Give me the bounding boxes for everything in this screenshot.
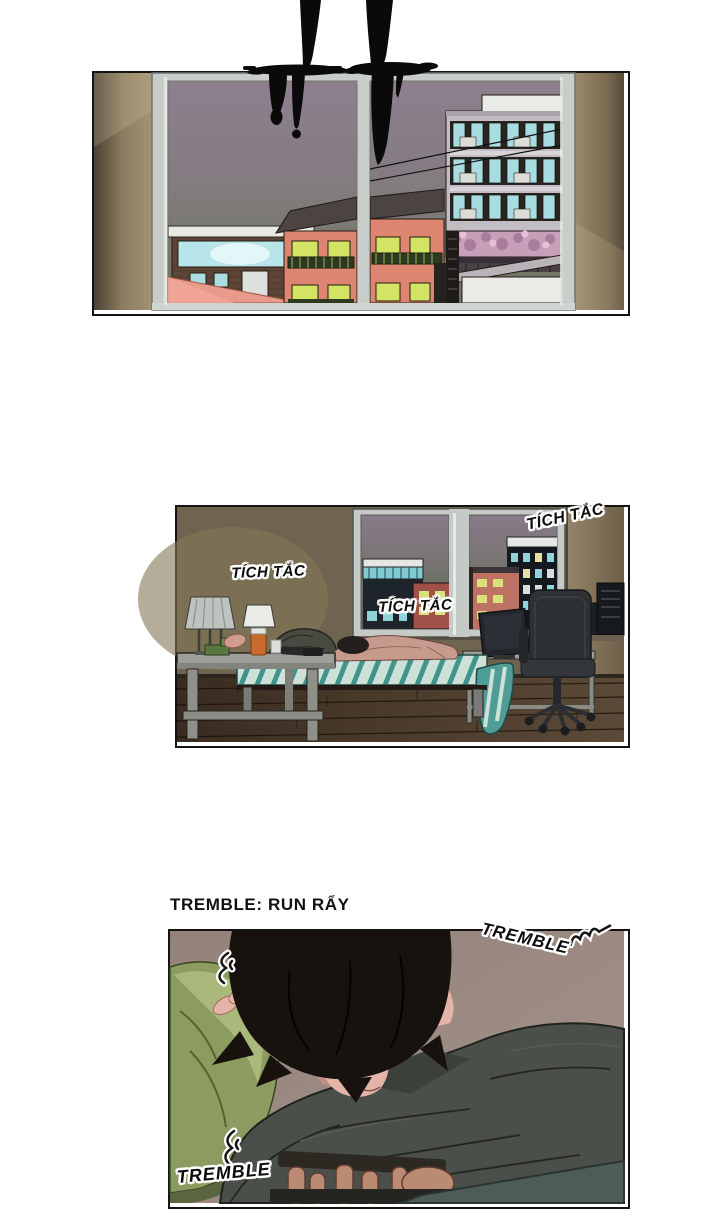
sfx-tick-tock-left: TÍCH TẮC	[231, 562, 306, 582]
panel-trembling-closeup: TREMBLE TREMBLE	[168, 929, 630, 1209]
translation-note: TREMBLE: RUN RẨY	[170, 895, 350, 915]
ladder	[446, 231, 459, 303]
sfx-tick-tock-center: TÍCH TẮC	[378, 596, 453, 616]
dark-hair	[337, 636, 369, 654]
window-city-art	[94, 73, 624, 310]
panel-bedroom: TÍCH TẮC TÍCH TẮC TÍCH TẮC	[175, 505, 630, 748]
thermos	[251, 628, 266, 655]
apartment-floors	[450, 121, 562, 221]
comic-page: TÍCH TẮC TÍCH TẮC TÍCH TẮC TREMBLE: RUN …	[0, 0, 719, 1230]
bedroom-art	[177, 507, 624, 742]
garage-door	[462, 277, 562, 303]
panel-window-city-view	[92, 71, 630, 316]
